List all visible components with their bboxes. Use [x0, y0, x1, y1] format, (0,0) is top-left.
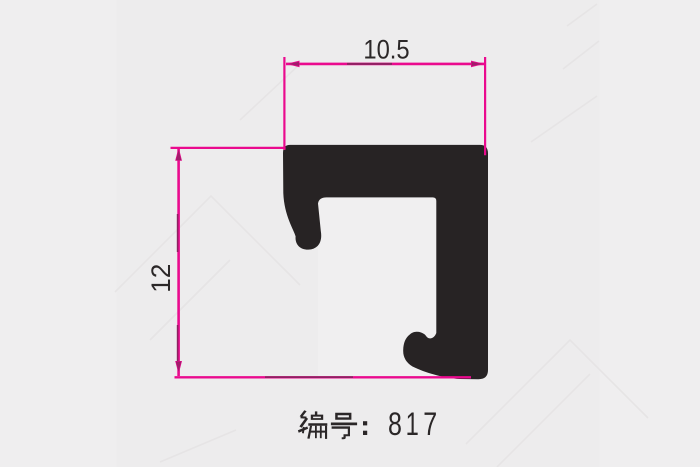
svg-text:12: 12 [146, 264, 176, 293]
svg-text:1: 1 [406, 406, 419, 443]
svg-text:7: 7 [423, 407, 437, 443]
svg-text:10.5: 10.5 [363, 35, 409, 65]
svg-text:8: 8 [388, 407, 402, 443]
